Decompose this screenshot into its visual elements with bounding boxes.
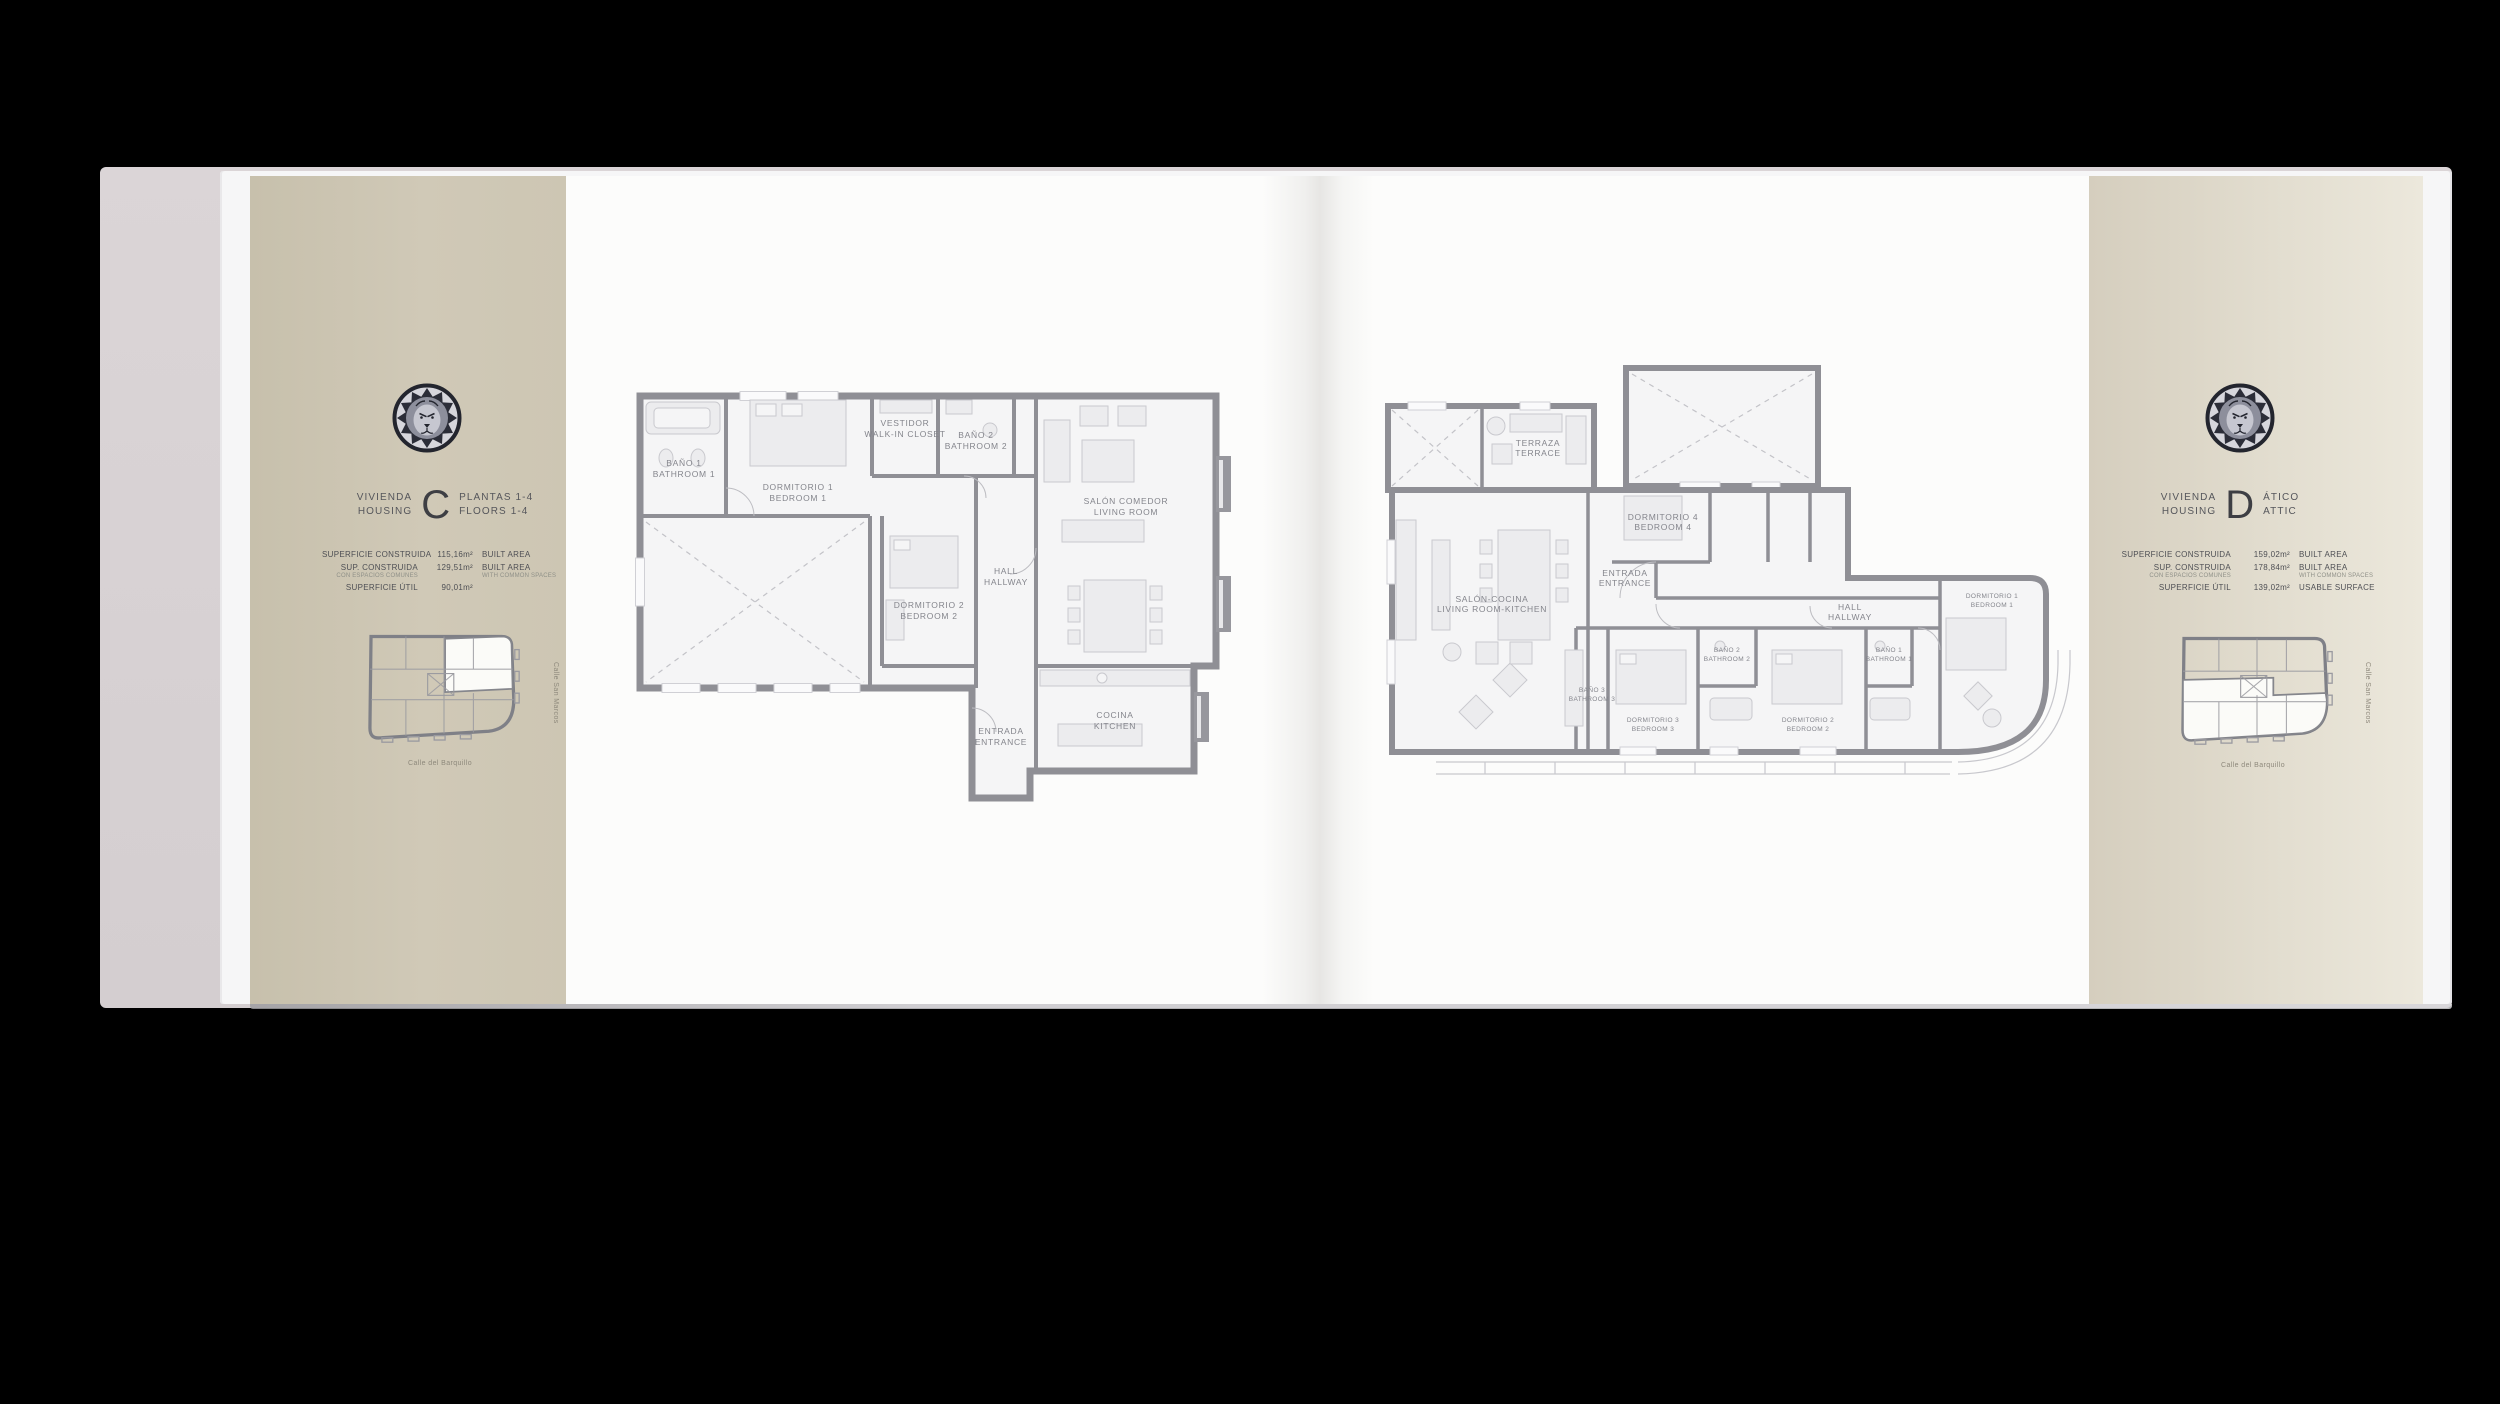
- unit-letter-c: C: [421, 485, 450, 525]
- room-label-bed2-en: BEDROOM 2: [900, 611, 957, 621]
- floor-plan-c: BAÑO 1 BATHROOM 1 DORMITORIO 1 BEDROOM 1…: [632, 368, 1252, 804]
- room-label-bed1-en: BEDROOM 1: [1971, 602, 2014, 609]
- room-label-bed3-es: DORMITORIO 3: [1627, 717, 1679, 724]
- highlighted-unit-c: [445, 637, 513, 693]
- room-label-bed2-es: DORMITORIO 2: [1782, 717, 1834, 724]
- unit-label-vivienda: VIVIENDA: [357, 491, 412, 505]
- room-label-bath2-en: BATHROOM 2: [945, 441, 1008, 451]
- unit-label-housing: HOUSING: [2161, 505, 2216, 519]
- area-label-es-main: SUP. CONSTRUIDA: [2118, 563, 2231, 572]
- book-spine-shadow: [1262, 176, 1374, 1004]
- room-label-terrace-en: TERRACE: [1515, 448, 1561, 458]
- area-label-es: SUPERFICIE CONSTRUIDA: [322, 550, 418, 559]
- area-label-es: SUP. CONSTRUIDA CON ESPACIOS COMUNES: [2118, 563, 2231, 579]
- book-bottom-edge: [250, 1004, 2452, 1009]
- area-value: 115,16m²: [427, 550, 473, 559]
- room-label-bath2-es: BAÑO 2: [958, 430, 993, 440]
- room-label-kitchen-es: COCINA: [1096, 710, 1133, 720]
- area-label-es: SUPERFICIE ÚTIL: [322, 583, 418, 592]
- room-label-hall-es: HALL: [1838, 602, 1862, 612]
- area-label-es: SUPERFICIE CONSTRUIDA: [2118, 550, 2231, 559]
- area-label-es: SUP. CONSTRUIDA CON ESPACIOS COMUNES: [322, 563, 418, 579]
- unit-label-es-en: VIVIENDA HOUSING: [2161, 491, 2216, 519]
- unit-floors-es: PLANTAS 1-4: [459, 491, 533, 505]
- room-label-living-en: LIVING ROOM: [1094, 507, 1158, 517]
- room-label-bed4-en: BEDROOM 4: [1634, 522, 1691, 532]
- area-value: 90,01m²: [427, 583, 473, 592]
- room-label-entry-en: ENTRANCE: [975, 737, 1027, 747]
- room-label-bed1-en: BEDROOM 1: [769, 493, 826, 503]
- area-value: 139,02m²: [2240, 583, 2290, 592]
- room-label-entry-en: ENTRANCE: [1599, 578, 1651, 588]
- area-table-c: SUPERFICIE CONSTRUIDA 115,16m² BUILT ARE…: [322, 550, 554, 592]
- room-label-bath3-es: BAÑO 3: [1579, 685, 1605, 694]
- street-label-san-marcos-left: Calle San Marcos: [552, 662, 559, 752]
- unit-floors-en: FLOORS 1-4: [459, 505, 533, 519]
- room-label-living-en: LIVING ROOM-KITCHEN: [1437, 604, 1547, 614]
- room-label-bed2-en: BEDROOM 2: [1787, 726, 1830, 733]
- room-label-bath2-en: BATHROOM 2: [1704, 656, 1751, 663]
- room-label-bath1-en: BATHROOM 1: [653, 469, 716, 479]
- area-label-es-sub: CON ESPACIOS COMUNES: [322, 573, 418, 579]
- area-value: 159,02m²: [2240, 550, 2290, 559]
- area-table-d: SUPERFICIE CONSTRUIDA 159,02m² BUILT ARE…: [2118, 550, 2378, 592]
- area-label-en-sub: WITH COMMON SPACES: [482, 573, 554, 579]
- room-label-bath2-es: BAÑO 2: [1714, 645, 1740, 654]
- area-label-en: BUILT AREA WITH COMMON SPACES: [482, 563, 554, 579]
- unit-floors-en: ATTIC: [2263, 505, 2299, 519]
- area-label-es-main: SUP. CONSTRUIDA: [322, 563, 418, 572]
- area-label-en: USABLE SURFACE: [2299, 583, 2383, 592]
- unit-letter-d: D: [2225, 485, 2254, 525]
- area-label-es: SUPERFICIE ÚTIL: [2118, 583, 2231, 592]
- room-label-entry-es: ENTRADA: [978, 726, 1024, 736]
- street-label-san-marcos-right: Calle San Marcos: [2364, 662, 2371, 752]
- room-label-bed4-es: DORMITORIO 4: [1628, 512, 1699, 522]
- unit-floors: ÁTICO ATTIC: [2263, 491, 2299, 519]
- street-label-barquillo-left: Calle del Barquillo: [365, 760, 515, 767]
- room-label-living-es: SALÓN-COCINA: [1455, 594, 1528, 604]
- room-label-hall-es: HALL: [994, 566, 1018, 576]
- room-label-bed3-en: BEDROOM 3: [1632, 726, 1675, 733]
- room-label-bath1-es: BAÑO 1: [1876, 645, 1902, 654]
- room-label-terrace-es: TERRAZA: [1516, 438, 1561, 448]
- room-label-bath1-en: BATHROOM 1: [1866, 656, 1913, 663]
- area-value: 129,51m²: [427, 563, 473, 572]
- room-label-bed2-es: DORMITORIO 2: [894, 600, 965, 610]
- area-label-en: BUILT AREA: [482, 550, 554, 559]
- area-label-en-main: BUILT AREA: [2299, 563, 2383, 572]
- key-plan-d: [2158, 632, 2356, 754]
- area-label-en: BUILT AREA: [2299, 550, 2383, 559]
- key-plan-c: [345, 630, 543, 752]
- room-label-bath3-en: BATHROOM 3: [1569, 696, 1616, 703]
- unit-label-vivienda: VIVIENDA: [2161, 491, 2216, 505]
- unit-label-es-en: VIVIENDA HOUSING: [357, 491, 412, 519]
- room-label-bed1-es: DORMITORIO 1: [763, 482, 834, 492]
- room-label-entry-es: ENTRADA: [1602, 568, 1648, 578]
- street-label-barquillo-right: Calle del Barquillo: [2178, 762, 2328, 769]
- room-label-hall-en: HALLWAY: [984, 577, 1028, 587]
- floor-plan-d: TERRAZA TERRACE DORMITORIO 4 BEDROOM 4 S…: [1380, 350, 2075, 828]
- unit-label-housing: HOUSING: [357, 505, 412, 519]
- room-label-living-es: SALÓN COMEDOR: [1084, 496, 1169, 506]
- area-value: 178,84m²: [2240, 563, 2290, 572]
- lion-logo-right: [2204, 382, 2276, 454]
- area-label-en-main: BUILT AREA: [482, 563, 554, 572]
- lion-logo-left: [391, 382, 463, 454]
- unit-title-c: VIVIENDA HOUSING C PLANTAS 1-4 FLOORS 1-…: [335, 484, 555, 526]
- room-label-hall-en: HALLWAY: [1828, 612, 1872, 622]
- unit-floors: PLANTAS 1-4 FLOORS 1-4: [459, 491, 533, 519]
- area-label-en-sub: WITH COMMON SPACES: [2299, 573, 2383, 579]
- area-label-en: BUILT AREA WITH COMMON SPACES: [2299, 563, 2383, 579]
- area-label-es-sub: CON ESPACIOS COMUNES: [2118, 573, 2231, 579]
- room-label-closet-en: WALK-IN CLOSET: [864, 429, 945, 439]
- room-label-closet-es: VESTIDOR: [880, 418, 929, 428]
- unit-floors-es: ÁTICO: [2263, 491, 2299, 505]
- room-label-bath1-es: BAÑO 1: [666, 458, 701, 468]
- unit-title-d: VIVIENDA HOUSING D ÁTICO ATTIC: [2120, 484, 2340, 526]
- room-label-bed1-es: DORMITORIO 1: [1966, 593, 2018, 600]
- room-label-kitchen-en: KITCHEN: [1094, 721, 1136, 731]
